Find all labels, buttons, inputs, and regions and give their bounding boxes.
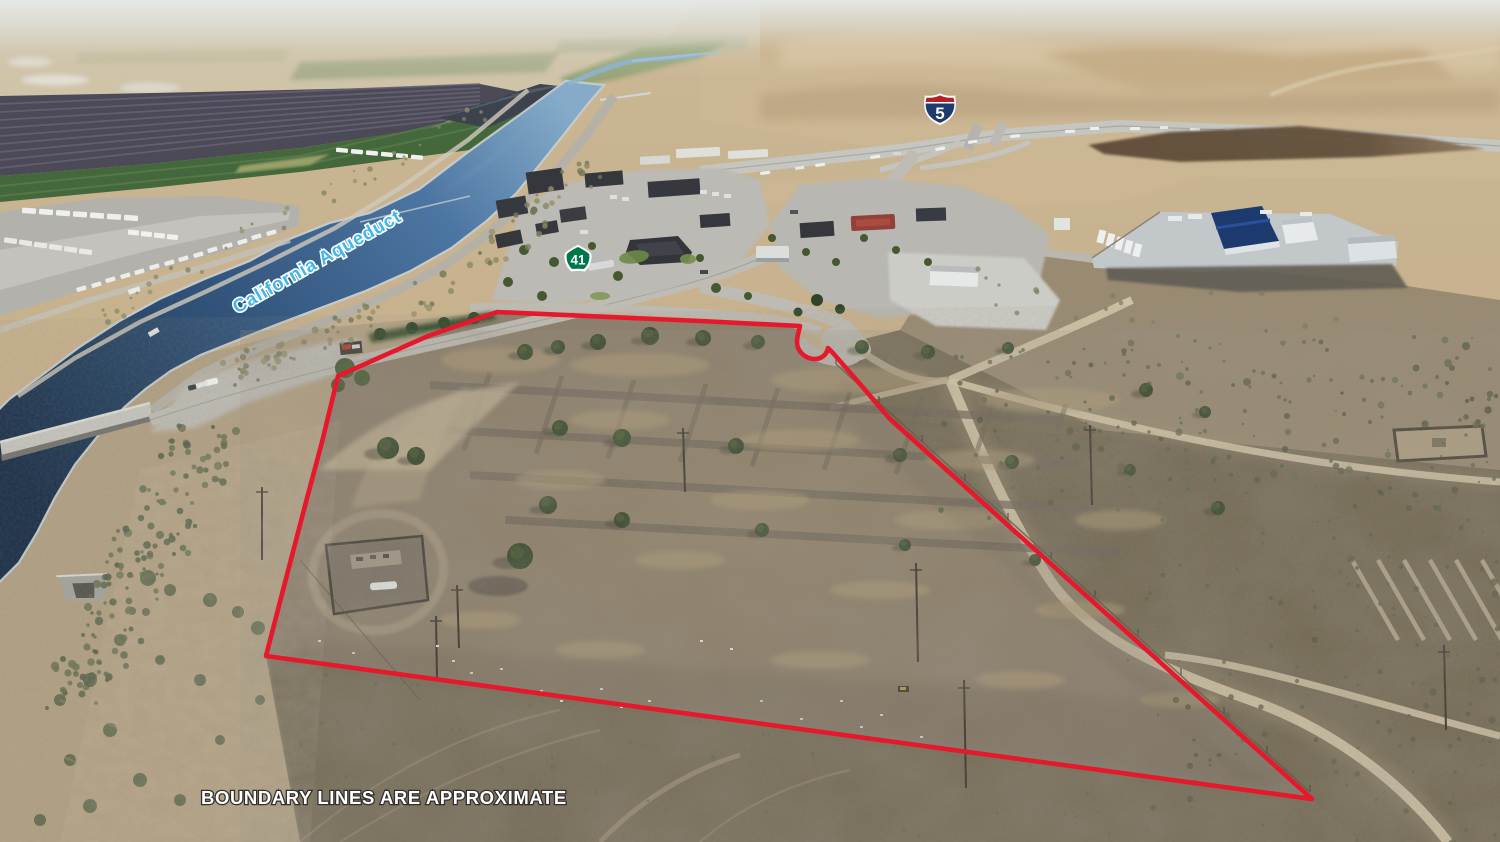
- svg-text:41: 41: [570, 253, 586, 268]
- svg-text:BOUNDARY LINES ARE APPROXIMATE: BOUNDARY LINES ARE APPROXIMATE: [201, 787, 567, 808]
- svg-text:5: 5: [935, 104, 944, 123]
